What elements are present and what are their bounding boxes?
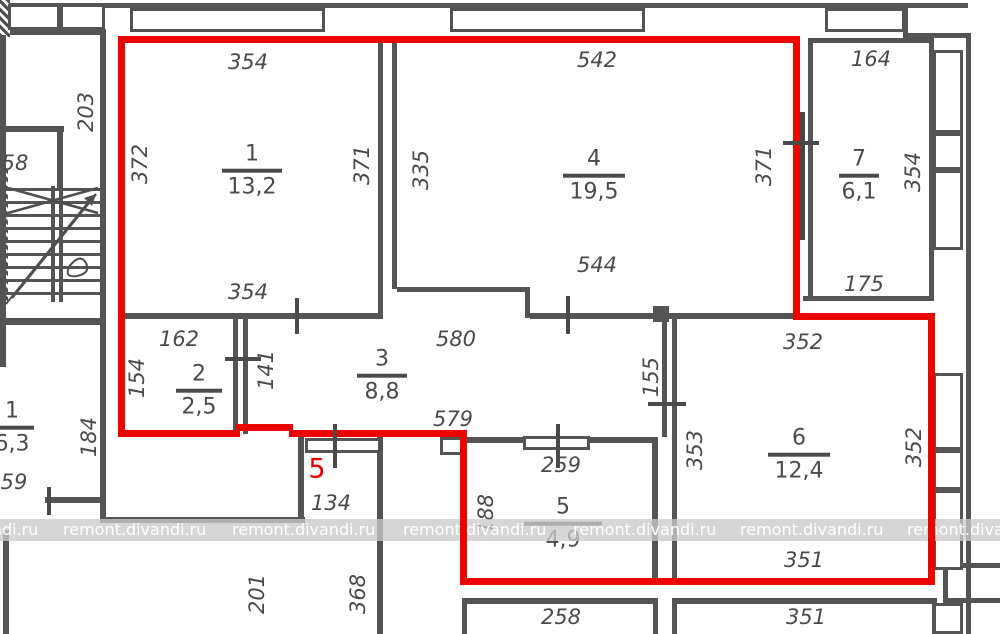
dimension-label: 542 xyxy=(577,48,617,72)
wall xyxy=(45,497,106,503)
room-2-label: 2 2,5 xyxy=(176,362,222,421)
wall xyxy=(808,38,934,43)
dimension-label: 351 xyxy=(786,605,826,629)
wall xyxy=(672,319,677,583)
door-tick xyxy=(783,141,819,145)
dimension-label: 371 xyxy=(350,145,374,185)
shaft-box xyxy=(305,438,381,453)
room-number: 5 xyxy=(524,495,602,520)
dimension-label: 175 xyxy=(844,272,884,296)
dimension-label: 372 xyxy=(128,144,152,184)
dimension-label: 162 xyxy=(159,327,199,351)
wall xyxy=(397,287,530,292)
watermark-band: remont.divandi.ru remont.divandi.ru remo… xyxy=(0,519,1000,541)
room-area: 6,3 xyxy=(0,432,34,457)
room-number: 1 xyxy=(0,399,34,424)
wall xyxy=(672,598,677,634)
dimension-label: 579 xyxy=(433,407,473,431)
wall xyxy=(903,33,968,38)
window xyxy=(933,170,963,250)
wall xyxy=(298,437,304,523)
duct-box xyxy=(60,4,105,30)
apartment-outline xyxy=(118,36,125,437)
dimension-label: 368 xyxy=(346,574,370,614)
floor-plan: 1 13,2 2 2,5 3 8,8 4 19,5 5 4,9 6 12,4 7… xyxy=(0,0,1000,634)
watermark-text: remont.divandi.ru xyxy=(63,519,206,541)
dimension-label: 371 xyxy=(752,146,776,186)
wall xyxy=(3,530,9,634)
dimension-label: 335 xyxy=(409,150,433,190)
apartment-outline xyxy=(928,313,935,585)
room-number: 7 xyxy=(839,147,879,172)
wall xyxy=(243,319,248,434)
wall xyxy=(392,36,397,289)
dimension-label: 134 xyxy=(311,491,351,515)
apartment-outline xyxy=(289,430,467,437)
dimension-label: 258 xyxy=(541,605,581,629)
dimension-label: 203 xyxy=(74,92,98,132)
flat-number: 5 xyxy=(308,454,325,485)
room-divider xyxy=(768,453,830,457)
dimension-label: 354 xyxy=(228,50,268,74)
dimension-label: 155 xyxy=(639,357,663,397)
dimension-label: 354 xyxy=(901,152,925,192)
room-number: 2 xyxy=(176,362,222,387)
window xyxy=(130,8,325,32)
wall-pier xyxy=(933,450,963,490)
door-tick xyxy=(295,298,299,334)
room-divider xyxy=(176,389,222,393)
window xyxy=(825,8,905,32)
room-number: 3 xyxy=(357,347,407,372)
door-tick xyxy=(225,357,261,361)
wall xyxy=(118,313,383,319)
watermark-text: remont.divandi.ru xyxy=(403,519,546,541)
wall xyxy=(378,36,383,313)
dimension-label: 259 xyxy=(541,453,581,477)
dimension-label: 580 xyxy=(436,327,476,351)
room-area: 8,8 xyxy=(357,380,407,405)
room-divider xyxy=(222,169,282,173)
duct-box xyxy=(8,4,60,30)
window xyxy=(933,373,963,450)
apartment-outline xyxy=(460,437,467,585)
stair-arrow-icon xyxy=(0,180,110,310)
wall xyxy=(653,598,658,634)
room-1-label: 1 13,2 xyxy=(222,142,282,201)
wall xyxy=(6,126,64,132)
entrance-door-tick xyxy=(333,424,337,468)
wall xyxy=(462,598,658,604)
apartment-outline xyxy=(118,36,800,43)
room-divider xyxy=(0,426,34,430)
door-tick xyxy=(566,296,570,334)
dimension-label: 184 xyxy=(77,417,101,457)
room-area: 19,5 xyxy=(563,180,625,205)
dimension-label: 58 xyxy=(2,151,29,175)
dimension-label: 141 xyxy=(254,350,278,390)
wall xyxy=(233,319,238,434)
dimension-label: 352 xyxy=(902,427,926,467)
room-3-label: 3 8,8 xyxy=(357,347,407,406)
door-tick xyxy=(556,424,560,468)
dimension-label: 164 xyxy=(851,47,891,71)
room-7-label: 7 6,1 xyxy=(839,147,879,206)
wall xyxy=(966,33,971,634)
apartment-outline xyxy=(793,313,935,320)
neighbor-room-label: 1 6,3 xyxy=(0,399,34,458)
window xyxy=(933,50,963,133)
dimension-label: 201 xyxy=(245,574,269,614)
watermark-text: remont.divandi.ru xyxy=(232,519,375,541)
window xyxy=(450,8,645,32)
wall xyxy=(0,318,106,325)
apartment-outline xyxy=(460,578,935,585)
dimension-label: 59 xyxy=(1,470,28,494)
dimension-label: 353 xyxy=(683,430,707,470)
watermark-text: remont.divandi.ru xyxy=(573,519,716,541)
room-divider xyxy=(563,174,625,178)
wall xyxy=(462,598,467,634)
apartment-outline xyxy=(793,36,800,318)
room-number: 1 xyxy=(222,142,282,167)
apartment-outline xyxy=(118,430,240,437)
room-area: 6,1 xyxy=(839,180,879,205)
room-area: 2,5 xyxy=(176,395,222,420)
room-6-label: 6 12,4 xyxy=(768,426,830,485)
dimension-label: 544 xyxy=(577,253,617,277)
apartment-outline xyxy=(236,424,293,431)
wall xyxy=(672,598,937,604)
door-tick xyxy=(648,402,686,406)
room-number: 6 xyxy=(768,426,830,451)
wall xyxy=(803,296,934,301)
room-4-label: 4 19,5 xyxy=(563,147,625,206)
room-area: 12,4 xyxy=(768,459,830,484)
room-divider xyxy=(839,174,879,178)
watermark-text: remont.divandi.ru xyxy=(0,519,38,541)
watermark-text: remont.divandi.ru xyxy=(740,519,883,541)
room-number: 4 xyxy=(563,147,625,172)
wall-pier xyxy=(933,133,963,170)
dimension-label: 154 xyxy=(125,358,149,398)
wall xyxy=(652,437,658,583)
wall xyxy=(808,38,813,301)
dimension-label: 352 xyxy=(783,330,823,354)
room-divider xyxy=(357,374,407,378)
door-tick xyxy=(47,487,51,515)
dimension-label: 354 xyxy=(228,280,268,304)
window xyxy=(933,603,963,634)
watermark-text: remont.divandi.ru xyxy=(907,519,1000,541)
room-area: 13,2 xyxy=(222,175,282,200)
dimension-label: 351 xyxy=(784,548,824,572)
